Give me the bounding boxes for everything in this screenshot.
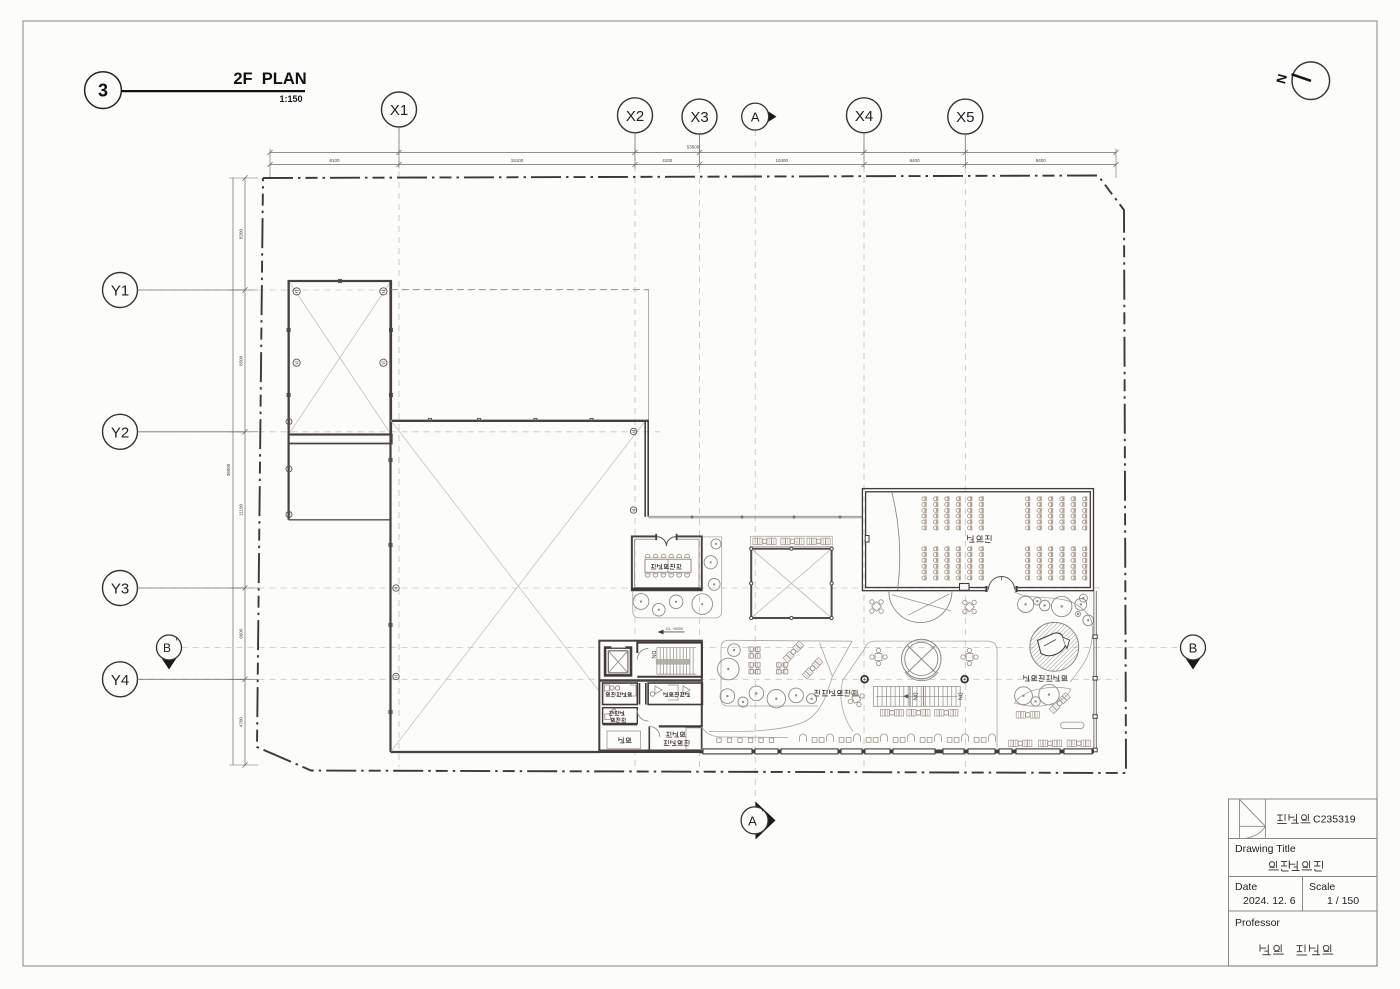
svg-text:15100: 15100 (511, 158, 524, 163)
svg-text:Y3: Y3 (111, 581, 129, 598)
svg-text:Scale: Scale (1309, 881, 1335, 893)
svg-text:': ' (762, 808, 764, 818)
svg-text:8100: 8100 (329, 158, 340, 163)
svg-text:4100: 4100 (662, 158, 673, 163)
svg-text:6400: 6400 (910, 158, 921, 163)
svg-text:DN: DN (912, 692, 918, 700)
svg-text:36000: 36000 (226, 463, 231, 476)
svg-text:C235319: C235319 (1313, 814, 1356, 826)
svg-text:A: A (751, 110, 760, 125)
svg-text:X5: X5 (956, 109, 974, 126)
svg-text:X3: X3 (690, 109, 708, 126)
svg-text:10400: 10400 (776, 158, 789, 163)
svg-text:X4: X4 (855, 108, 873, 125)
svg-text:4700: 4700 (238, 717, 243, 728)
svg-text:': ' (176, 637, 178, 647)
svg-text:X1: X1 (390, 102, 408, 119)
svg-text:11100: 11100 (239, 503, 244, 515)
svg-text:GL +8000: GL +8000 (666, 626, 684, 631)
svg-text:1:150: 1:150 (279, 94, 302, 104)
svg-text:9400: 9400 (1036, 158, 1047, 163)
svg-text:Professor: Professor (1235, 917, 1280, 929)
svg-text:B: B (163, 641, 171, 655)
svg-text:Y4: Y4 (111, 672, 129, 689)
svg-text:6600: 6600 (238, 628, 243, 639)
svg-text:Y2: Y2 (111, 424, 129, 441)
svg-text:3: 3 (98, 81, 108, 101)
svg-text:1 / 150: 1 / 150 (1327, 895, 1359, 907)
svg-text:DN: DN (650, 651, 656, 659)
svg-text:8200: 8200 (239, 228, 244, 239)
svg-text:Drawing Title: Drawing Title (1235, 843, 1296, 855)
svg-text:DN: DN (957, 692, 963, 700)
svg-text:Date: Date (1235, 881, 1257, 893)
svg-text:2F PLAN: 2F PLAN (233, 70, 306, 88)
svg-text:8500: 8500 (239, 355, 244, 366)
svg-text:A: A (748, 814, 757, 829)
svg-text:X2: X2 (626, 108, 644, 125)
svg-text:53500: 53500 (687, 145, 700, 150)
svg-text:Y1: Y1 (111, 283, 129, 300)
svg-text:2024. 12. 6: 2024. 12. 6 (1243, 895, 1296, 907)
svg-text:B: B (1189, 641, 1198, 656)
